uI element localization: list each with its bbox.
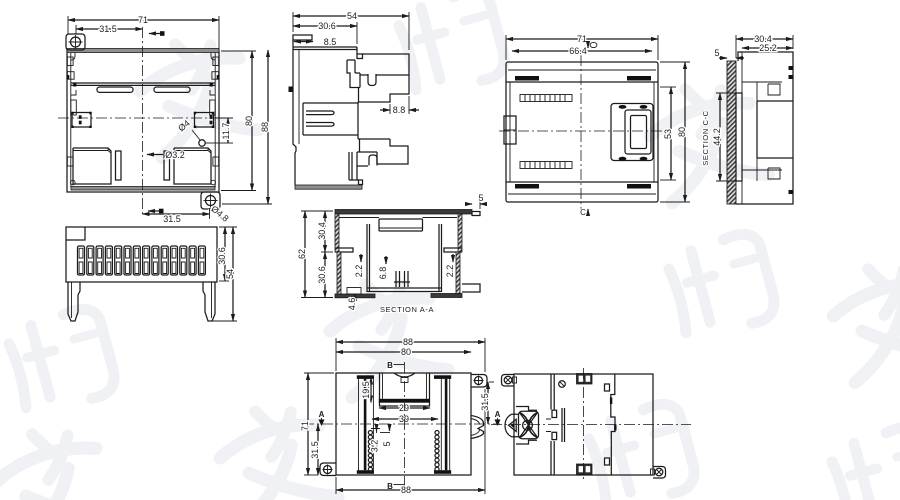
svg-text:62: 62: [297, 249, 307, 259]
svg-text:44.2: 44.2: [712, 128, 722, 146]
svg-text:71: 71: [138, 15, 148, 25]
svg-text:SECTION A-A: SECTION A-A: [380, 305, 434, 314]
svg-text:71: 71: [300, 421, 310, 431]
svg-text:SECTION C-C: SECTION C-C: [701, 110, 710, 165]
svg-text:4.6: 4.6: [347, 298, 357, 311]
svg-text:39: 39: [399, 414, 409, 424]
svg-text:5: 5: [714, 48, 719, 58]
svg-text:19.5: 19.5: [361, 381, 371, 399]
svg-text:53: 53: [663, 129, 673, 139]
svg-text:31.5: 31.5: [310, 441, 320, 459]
svg-text:8.8: 8.8: [393, 105, 406, 115]
svg-text:71: 71: [577, 34, 587, 44]
svg-text:A: A: [495, 410, 501, 419]
svg-text:11.7: 11.7: [221, 123, 231, 140]
svg-text:54: 54: [225, 269, 235, 279]
svg-text:Ø3.2: Ø3.2: [165, 150, 185, 160]
svg-text:8.5: 8.5: [324, 37, 337, 47]
svg-text:6.8: 6.8: [378, 267, 388, 280]
svg-text:66.4: 66.4: [569, 46, 587, 56]
svg-text:5: 5: [382, 441, 392, 446]
svg-text:80: 80: [244, 116, 254, 126]
svg-text:B: B: [387, 361, 393, 370]
svg-text:31.5: 31.5: [480, 393, 490, 411]
svg-text:80: 80: [401, 347, 411, 357]
svg-text:25.2: 25.2: [759, 43, 777, 53]
svg-text:29: 29: [399, 403, 409, 413]
svg-text:30.6: 30.6: [318, 21, 336, 31]
svg-text:3.2: 3.2: [370, 440, 380, 453]
svg-text:31.5: 31.5: [163, 214, 181, 224]
svg-text:88: 88: [403, 337, 413, 347]
svg-text:2.2: 2.2: [354, 265, 364, 278]
svg-text:54: 54: [347, 11, 357, 21]
svg-text:A: A: [319, 410, 325, 419]
svg-text:30.6: 30.6: [217, 247, 227, 265]
svg-text:88: 88: [401, 485, 411, 495]
svg-text:2.2: 2.2: [445, 265, 455, 278]
svg-text:88: 88: [260, 122, 270, 132]
svg-text:31.5: 31.5: [99, 24, 117, 34]
svg-text:30.6: 30.6: [317, 266, 327, 284]
svg-text:30.4: 30.4: [317, 222, 327, 240]
svg-text:80: 80: [677, 127, 687, 137]
svg-text:5: 5: [478, 193, 483, 203]
svg-text:C: C: [580, 208, 586, 217]
